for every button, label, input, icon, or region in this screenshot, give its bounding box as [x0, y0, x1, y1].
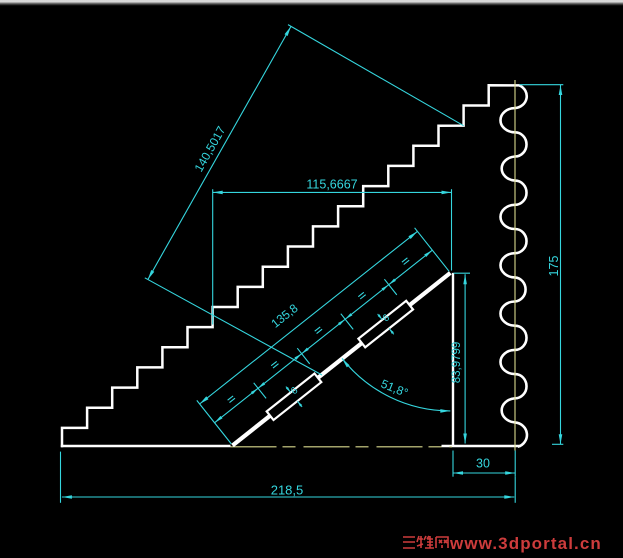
svg-text:30: 30 [476, 457, 490, 471]
svg-text:83,9799: 83,9799 [451, 342, 463, 384]
svg-text:218,5: 218,5 [271, 483, 304, 498]
svg-text:175: 175 [547, 256, 561, 277]
svg-text:115,6667: 115,6667 [306, 178, 357, 192]
